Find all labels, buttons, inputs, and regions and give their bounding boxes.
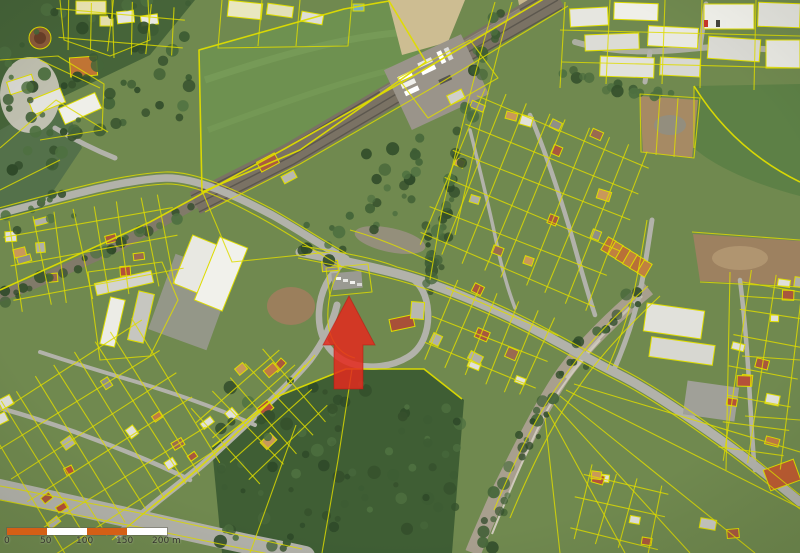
scale-label: 50 (40, 536, 51, 546)
scale-segment (87, 528, 127, 535)
scale-label: 0 (4, 536, 10, 546)
scale-label: 100 (76, 536, 93, 546)
scale-segment (127, 528, 167, 535)
scale-label: 150 (116, 536, 133, 546)
map-canvas[interactable] (0, 0, 800, 553)
scale-segment (47, 528, 87, 535)
scale-segment (7, 528, 47, 535)
map-viewport: 0 50 100 150 200 m (0, 0, 800, 553)
scale-label: 200 m (152, 536, 181, 546)
map-scale-bar: 0 50 100 150 200 m (7, 528, 167, 535)
